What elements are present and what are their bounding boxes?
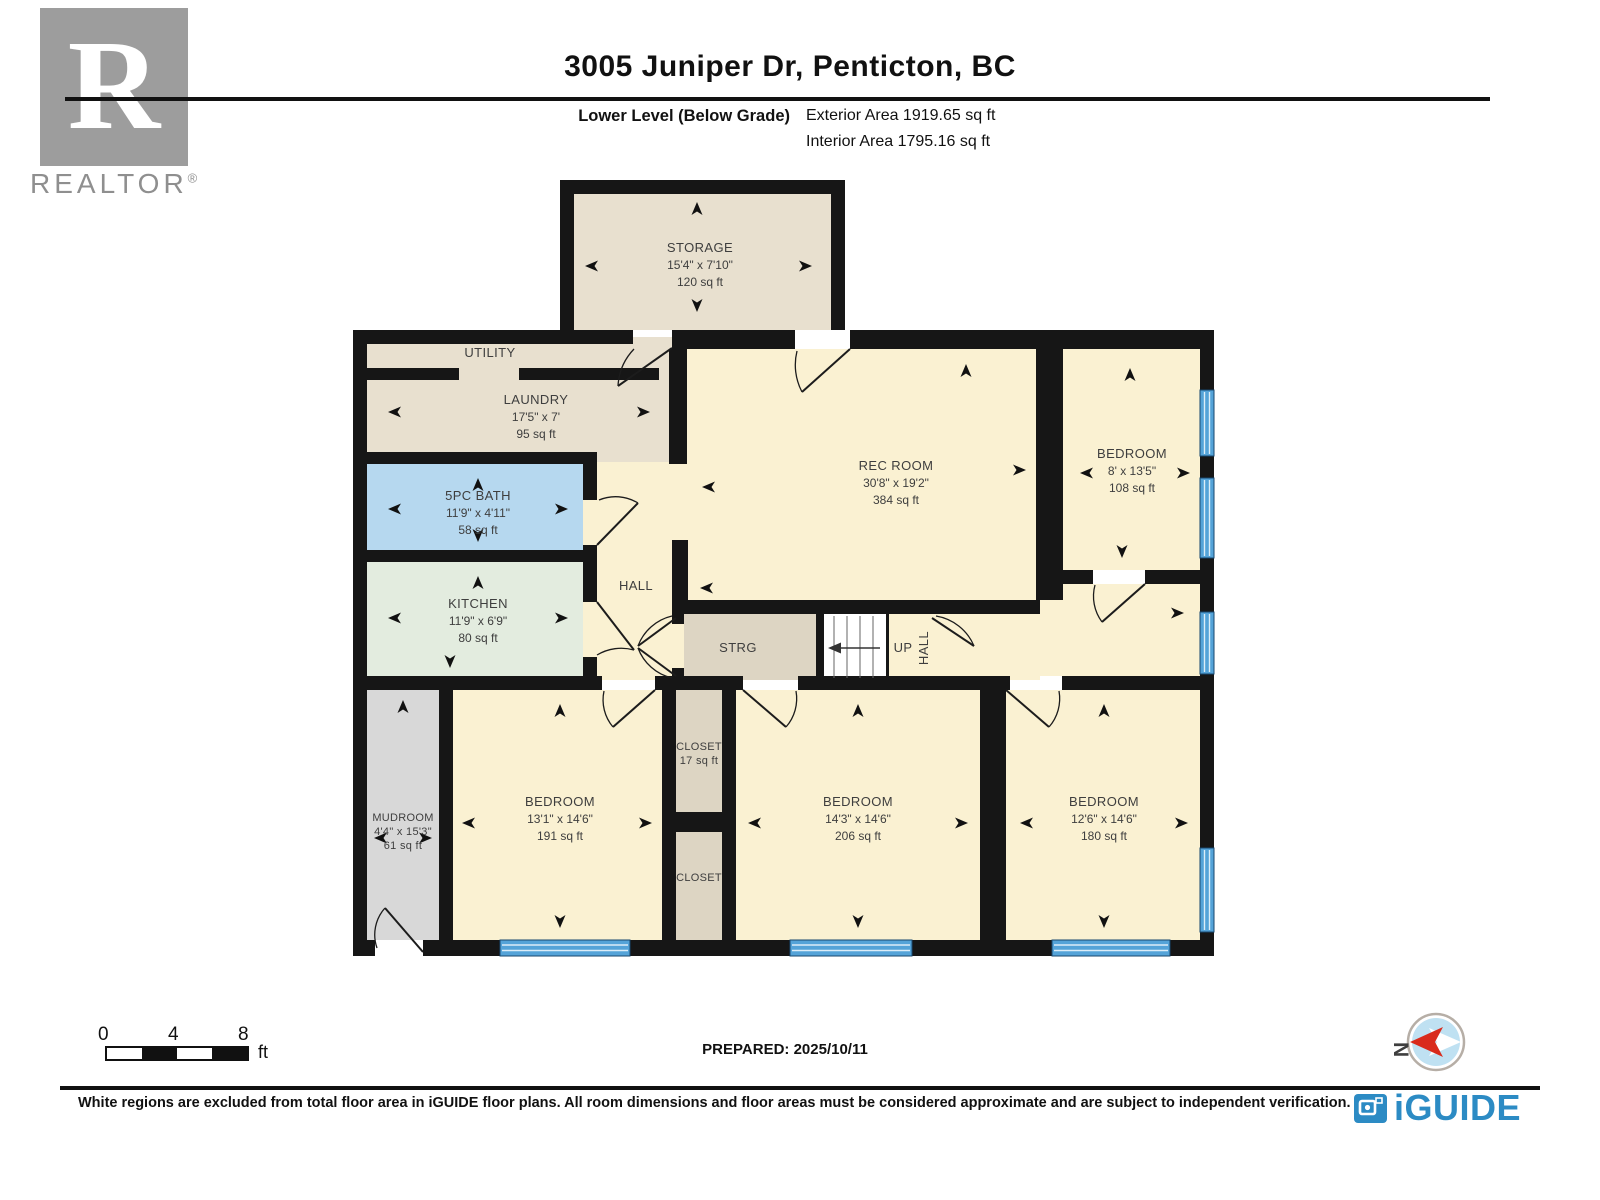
room-area: 384 sq ft xyxy=(873,493,920,507)
realtor-wordmark: REALTOR® xyxy=(30,168,201,200)
room-area: 95 sq ft xyxy=(516,427,556,441)
room-area: 58 sq ft xyxy=(458,523,498,537)
room-area: 180 sq ft xyxy=(1081,829,1128,843)
window xyxy=(1200,390,1214,456)
room-dims: 13'1" x 14'6" xyxy=(527,812,593,826)
room-label: BEDROOM xyxy=(823,794,893,809)
room-label: STORAGE xyxy=(667,240,733,255)
room-label: HALL xyxy=(619,578,653,593)
realtor-logo: R xyxy=(40,8,188,166)
room-label: MUDROOM xyxy=(372,812,433,824)
room-label: BEDROOM xyxy=(1069,794,1139,809)
realtor-r-monogram: R xyxy=(40,10,188,166)
registered-symbol: ® xyxy=(188,171,202,186)
room-label: HALL xyxy=(916,631,931,665)
door-gap xyxy=(1093,570,1145,584)
iguide-logo: iGUIDE xyxy=(1352,1087,1521,1129)
room-label: 5PC BATH xyxy=(445,488,511,503)
room-rec-floor xyxy=(687,349,1036,600)
room-dims: 12'6" x 14'6" xyxy=(1071,812,1137,826)
floor-plan-svg: STORAGE 15'4" x 7'10" 120 sq ft UTILITY … xyxy=(0,0,1600,1200)
room-dims: 4'4" x 15'3" xyxy=(374,826,432,838)
room-dims: 17'5" x 7' xyxy=(512,410,560,424)
room-label: BEDROOM xyxy=(525,794,595,809)
room-dims: 14'3" x 14'6" xyxy=(825,812,891,826)
room-area: 191 sq ft xyxy=(537,829,584,843)
room-label: CLOSET xyxy=(676,741,722,753)
window xyxy=(1200,478,1214,558)
room-dims: 11'9" x 6'9" xyxy=(449,614,507,628)
room-area: 80 sq ft xyxy=(458,631,498,645)
room-area: 61 sq ft xyxy=(384,840,422,852)
iguide-wordmark: iGUIDE xyxy=(1394,1087,1521,1129)
window xyxy=(1200,848,1214,932)
window xyxy=(790,940,912,956)
room-label: CLOSET xyxy=(676,872,722,884)
floor-plan-page: R REALTOR® 3005 Juniper Dr, Penticton, B… xyxy=(0,0,1600,1200)
room-label: LAUNDRY xyxy=(504,392,569,407)
room-label: KITCHEN xyxy=(448,596,508,611)
room-dims: 30'8" x 19'2" xyxy=(863,476,929,490)
prepared-date: PREPARED: 2025/10/11 xyxy=(0,1041,1570,1058)
window xyxy=(1052,940,1170,956)
room-label: REC ROOM xyxy=(859,458,934,473)
room-dims: 15'4" x 7'10" xyxy=(667,258,733,272)
room-closet-lower-floor xyxy=(676,832,722,940)
room-area: 108 sq ft xyxy=(1109,481,1156,495)
room-area: 17 sq ft xyxy=(680,755,718,767)
footer-rule xyxy=(60,1086,1540,1090)
room-label: BEDROOM xyxy=(1097,446,1167,461)
room-dims: 8' x 13'5" xyxy=(1108,464,1156,478)
room-label: UTILITY xyxy=(464,345,515,360)
window xyxy=(500,940,630,956)
disclaimer-text: White regions are excluded from total fl… xyxy=(78,1095,1351,1111)
iguide-camera-icon xyxy=(1352,1091,1390,1125)
door-gap xyxy=(795,330,850,349)
compass-icon: N xyxy=(1388,1008,1478,1080)
window xyxy=(1200,612,1214,674)
room-dims: 11'9" x 4'11" xyxy=(446,506,510,520)
compass-north-label: N xyxy=(1389,1042,1412,1057)
room-area: 206 sq ft xyxy=(835,829,882,843)
room-area: 120 sq ft xyxy=(677,275,724,289)
room-label: STRG xyxy=(719,640,757,655)
room-floors xyxy=(367,190,1200,940)
header-rule xyxy=(65,97,1490,101)
stairs-up-label: UP xyxy=(894,640,913,655)
